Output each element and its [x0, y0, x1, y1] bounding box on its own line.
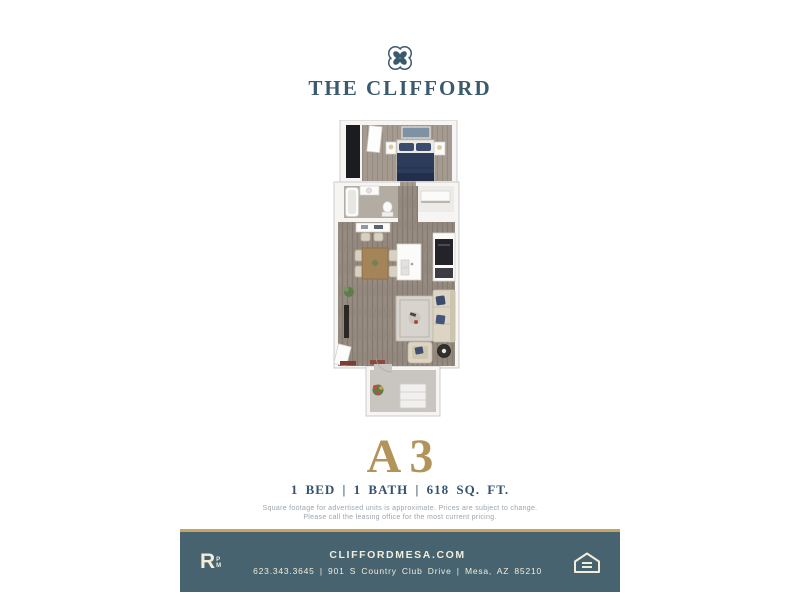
rug	[396, 296, 433, 341]
disclaimer-line-1: Square footage for advertised units is a…	[0, 504, 800, 513]
disclaimer: Square footage for advertised units is a…	[0, 504, 800, 522]
wall-art	[402, 127, 430, 138]
unit-code: A3	[0, 433, 800, 481]
contact-line: 623.343.3645 | 901 S Country Club Drive …	[221, 566, 574, 576]
flyer-page: THE CLIFFORD	[0, 0, 800, 600]
toilet	[382, 202, 393, 217]
armchair	[408, 342, 432, 363]
closet	[418, 186, 454, 212]
plant	[344, 287, 354, 297]
rpm-logo-letter: R	[200, 552, 215, 572]
rpm-logo: R P M	[200, 552, 221, 572]
hallway-floor	[398, 186, 418, 226]
door-mat	[340, 361, 356, 366]
flower-pot	[373, 385, 384, 396]
tv-console	[344, 305, 349, 338]
website-text: CLIFFORDMESA.COM	[221, 549, 574, 561]
disclaimer-line-2: Please call the leasing office for the m…	[0, 513, 800, 522]
floor-plan-image	[312, 120, 488, 432]
kitchen-counter	[433, 233, 455, 281]
bed	[397, 140, 434, 181]
unit-specs: 1 BED | 1 BATH | 618 SQ. FT.	[0, 482, 800, 498]
living-area	[334, 222, 455, 366]
kitchen-island	[397, 244, 421, 280]
bathroom	[344, 186, 398, 218]
steps	[400, 384, 426, 408]
brand-logo	[0, 42, 800, 74]
equal-housing-icon	[574, 552, 600, 573]
footer-contact-block: CLIFFORDMESA.COM 623.343.3645 | 901 S Co…	[221, 549, 574, 576]
bathtub	[346, 188, 359, 217]
sofa	[433, 290, 455, 342]
quatrefoil-icon	[384, 42, 416, 74]
footer: R P M CLIFFORDMESA.COM 623.343.3645 | 90…	[180, 532, 620, 592]
side-table	[438, 345, 451, 358]
brand-title: THE CLIFFORD	[0, 76, 800, 101]
vanity-sink	[360, 186, 379, 195]
